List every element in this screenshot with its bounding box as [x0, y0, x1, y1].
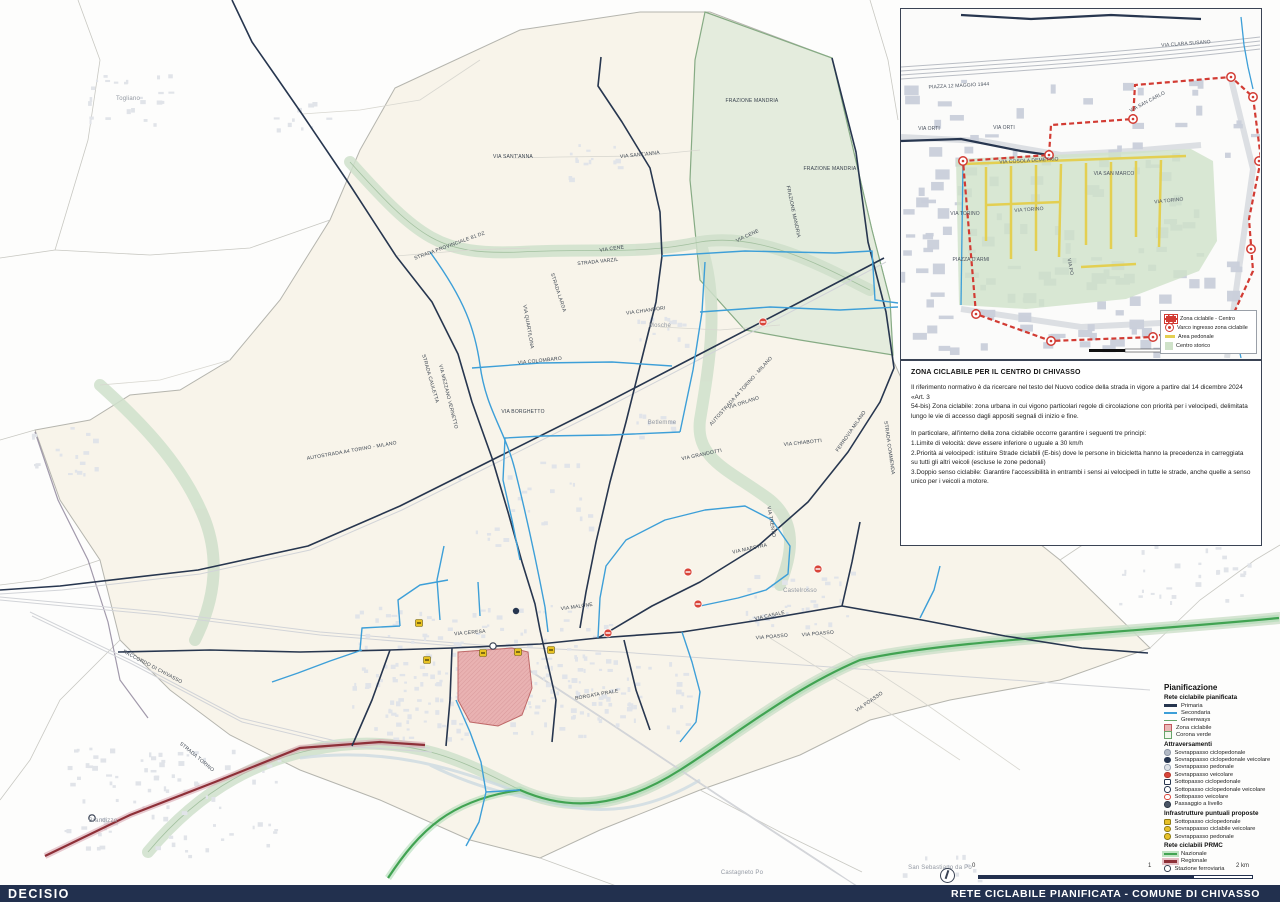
varco-gate-icon [1047, 337, 1055, 345]
legend-swatch [1164, 749, 1171, 756]
legend-swatch [1164, 853, 1177, 856]
info-paragraph: Il riferimento normativo è da ricercare … [911, 383, 1251, 393]
legend-item-label: Sovrappasso pedonale [1175, 834, 1234, 840]
town-label: Castelrosso [783, 588, 817, 594]
legend-section-title: Infrastrutture puntuali proposte [1164, 810, 1276, 817]
proposed-yellow-icon [515, 649, 522, 656]
legend-swatch [1164, 779, 1171, 786]
inset-map: VIA CLARA SUSANOPIAZZA 12 MAGGIO 1944VIA… [901, 9, 1260, 358]
legend-item: Sottopasso veicolare [1164, 793, 1276, 800]
legend-section-title: Rete ciclabile pianificata [1164, 694, 1276, 701]
legend-item-label: Secondaria [1181, 710, 1210, 716]
yellow-line-icon [1165, 335, 1175, 338]
crossing-red-icon [684, 568, 692, 576]
legend-section-title: Rete ciclabili PRMC [1164, 842, 1276, 849]
legend-swatch [1164, 801, 1171, 808]
legend-item: Sovrappasso veicolare [1164, 771, 1276, 778]
legend-swatch [1164, 786, 1171, 793]
legend-item: Sovrappasso ciclopedonale [1164, 749, 1276, 756]
varco-gate-icon [1247, 245, 1255, 253]
legend-title: Pianificazione [1164, 683, 1276, 692]
legend-swatch [1164, 819, 1171, 826]
town-label: Castagneto Po [721, 870, 764, 876]
proposed-yellow-icon [548, 647, 555, 654]
varco-gate-icon [1255, 157, 1260, 165]
varco-gate-icon [1227, 73, 1235, 81]
legend-swatch [1164, 794, 1171, 801]
map-legend: Pianificazione Rete ciclabile pianificat… [1164, 683, 1276, 872]
inset-legend-item: Centro storico [1165, 341, 1252, 350]
crossing-navy-icon [513, 608, 519, 614]
varco-gate-icon [1149, 333, 1157, 341]
legend-item-label: Sovrappasso ciclopedonale veicolare [1175, 757, 1271, 763]
legend-swatch [1164, 826, 1171, 833]
town-label: Brandizzo [89, 818, 118, 824]
legend-item-label: Sottopasso ciclopedonale veicolare [1175, 787, 1266, 793]
legend-item: Sovrappasso pedonale [1164, 764, 1276, 771]
inset-street-label: VIA SAN MARCO [1094, 171, 1135, 177]
street-label: VIA SANT'ANNA [493, 154, 533, 160]
legend-swatch [1164, 720, 1177, 722]
scale-bar: 0 1 2 km [940, 863, 1258, 883]
inset-street-label: VIA ORTI [993, 125, 1015, 131]
legend-item-label: Corona verde [1176, 732, 1211, 738]
proposed-yellow-icon [416, 620, 423, 627]
street-label: FRAZIONE MANDRIA [804, 166, 857, 172]
inset-legend-item: Zona ciclabile - Centro [1165, 314, 1252, 323]
red-gate-icon [1165, 323, 1174, 332]
crossing-red-icon [814, 565, 822, 573]
legend-item: Passaggio a livello [1164, 801, 1276, 808]
inset-map-panel: VIA CLARA SUSANOPIAZZA 12 MAGGIO 1944VIA… [900, 8, 1262, 360]
footer-bar: DECISIO RETE CICLABILE PIANIFICATA - COM… [0, 885, 1280, 902]
inset-street-label: VIA TORINO [950, 211, 979, 217]
legend-item-label: Passaggio a livello [1175, 801, 1223, 807]
legend-item: Corona verde [1164, 732, 1276, 739]
legend-section-title: Attraversamenti [1164, 741, 1276, 748]
crossing-red-icon [694, 600, 702, 608]
legend-item: Greenways [1164, 717, 1276, 724]
street-label: VIA BORGHETTO [501, 409, 544, 415]
zona-ciclabile-area [458, 648, 532, 726]
legend-item: Zona ciclabile [1164, 724, 1276, 731]
varco-gate-icon [1129, 115, 1137, 123]
inset-legend: Zona ciclabile - CentroVarco ingresso zo… [1160, 310, 1257, 354]
red-dashed-area-icon [1165, 315, 1177, 323]
legend-swatch [1164, 772, 1171, 779]
street-label: FRAZIONE MANDRIA [726, 98, 779, 104]
info-paragraph: 3.Doppio senso ciclabile: Garantire l'ac… [911, 468, 1251, 487]
info-paragraph: 2.Priorità ai velocipedi: istituire Stra… [911, 449, 1251, 468]
legend-item-label: Primaria [1181, 703, 1203, 709]
legend-item-label: Sovrappasso pedonale [1175, 764, 1234, 770]
legend-item: Primaria [1164, 702, 1276, 709]
legend-sections: Rete ciclabile pianificataPrimariaSecond… [1164, 694, 1276, 872]
inset-legend-label: Centro storico [1176, 343, 1210, 349]
info-paragraph [911, 421, 1251, 429]
legend-swatch [1164, 757, 1171, 764]
legend-item: Sovrappasso pedonale [1164, 833, 1276, 840]
varco-gate-icon [972, 310, 980, 318]
proposed-yellow-icon [480, 650, 487, 657]
crossing-red-icon [604, 629, 612, 637]
info-paragraphs: Il riferimento normativo è da ricercare … [911, 383, 1251, 487]
legend-swatch [1164, 704, 1177, 707]
info-paragraph: 1.Limite di velocità: deve essere inferi… [911, 439, 1251, 449]
proposed-yellow-icon [424, 657, 431, 664]
inset-legend-label: Varco ingresso zona ciclabile [1177, 325, 1248, 331]
town-label: Togliano [116, 96, 140, 102]
legend-item-label: Zona ciclabile [1176, 725, 1211, 731]
info-title: ZONA CICLABILE PER IL CENTRO DI CHIVASSO [911, 369, 1251, 376]
info-paragraph: 54-bis) Zona ciclabile: zona urbana in c… [911, 402, 1251, 421]
legend-item-label: Greenways [1181, 717, 1210, 723]
legend-item: Secondaria [1164, 709, 1276, 716]
station-icon [490, 643, 496, 649]
info-paragraph: «Art. 3 [911, 393, 1251, 403]
legend-item-label: Nazionale [1181, 851, 1207, 857]
info-paragraph: In particolare, all'interno della zona c… [911, 429, 1251, 439]
legend-item: Sottopasso ciclopedonale [1164, 818, 1276, 825]
inset-scalebar [1089, 349, 1161, 352]
legend-item: Nazionale [1164, 850, 1276, 857]
inset-legend-label: Area pedonale [1178, 334, 1214, 340]
legend-item-label: Sottopasso veicolare [1175, 794, 1229, 800]
legend-item: Sovrappasso ciclopedonale veicolare [1164, 756, 1276, 763]
inset-legend-item: Area pedonale [1165, 332, 1252, 341]
legend-swatch [1164, 764, 1171, 771]
inset-street-label: PIAZZA D'ARMI [953, 257, 990, 263]
legend-item-label: Sottopasso ciclopedonale [1175, 819, 1241, 825]
sheet-title: RETE CICLABILE PIANIFICATA - COMUNE DI C… [951, 888, 1260, 900]
legend-swatch [1164, 712, 1177, 714]
legend-item: Sovrappasso ciclabile veicolare [1164, 825, 1276, 832]
varco-gate-icon [1249, 93, 1257, 101]
inset-legend-label: Zona ciclabile - Centro [1180, 316, 1235, 322]
legend-item: Sottopasso ciclopedonale veicolare [1164, 786, 1276, 793]
info-panel: ZONA CICLABILE PER IL CENTRO DI CHIVASSO… [900, 360, 1262, 546]
scale-label-end: 2 km [1236, 863, 1249, 869]
town-label: Betlemme [648, 420, 677, 426]
scale-bar-filled [978, 875, 1193, 879]
green-area-icon [1165, 342, 1173, 350]
legend-swatch [1164, 731, 1172, 739]
town-label: Mosche [649, 323, 672, 329]
scale-label-start: 0 [972, 863, 975, 869]
legend-item-label: Sottopasso ciclopedonale [1175, 779, 1241, 785]
map-sheet: VIA SANT'ANNAVIA SANT'ANNAFRAZIONE MANDR… [0, 0, 1280, 902]
scale-label-middle: 1 [1148, 863, 1151, 869]
compass-icon [940, 868, 955, 883]
legend-item-label: Sovrappasso ciclopedonale [1175, 750, 1246, 756]
scale-bar-outline [1193, 875, 1253, 879]
legend-item-label: Sovrappasso veicolare [1175, 772, 1234, 778]
legend-item: Sottopasso ciclopedonale [1164, 779, 1276, 786]
legend-swatch [1164, 833, 1171, 840]
inset-street-label: VIA ORTI [918, 126, 940, 132]
crossing-red-icon [759, 318, 767, 326]
inset-legend-item: Varco ingresso zona ciclabile [1165, 323, 1252, 332]
decisio-logo: DECISIO [8, 887, 70, 901]
legend-item-label: Sovrappasso ciclabile veicolare [1175, 826, 1256, 832]
varco-gate-icon [959, 157, 967, 165]
